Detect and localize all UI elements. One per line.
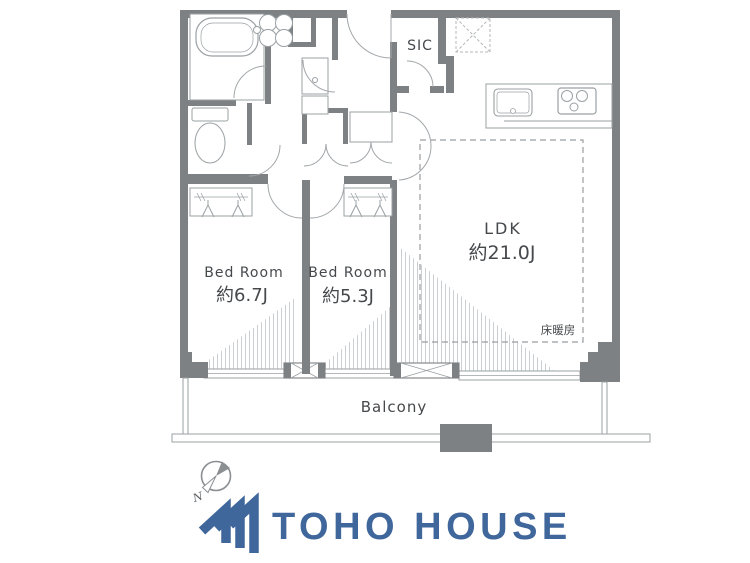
floorplan-drawing: SIC LDK 約21.0J 床暖房 Bed Room 約6.7J Bed Ro… <box>0 0 750 563</box>
vanity <box>302 58 328 114</box>
label-bedroom2: Bed Room <box>308 265 387 281</box>
stove <box>558 88 596 114</box>
sic-door-arc <box>407 61 433 87</box>
label-sic: SIC <box>407 38 433 54</box>
logo-mark-icon <box>202 503 254 553</box>
label-ldk: LDK <box>484 219 522 238</box>
storage-door-arc <box>304 144 326 166</box>
toilet <box>192 108 228 163</box>
pillar-box <box>456 18 490 52</box>
closet-bedroom1 <box>190 188 252 217</box>
label-bedroom1-size: 約6.7J <box>216 285 268 306</box>
bedroom2-door-arc <box>310 184 344 218</box>
storage-door-arc <box>371 142 392 163</box>
storage-door-arc <box>350 142 371 163</box>
toilet-door-arc <box>249 145 280 176</box>
entrance-door-arc <box>347 14 391 58</box>
label-balcony: Balcony <box>361 398 427 416</box>
ldk-door-arc <box>399 146 431 180</box>
toho-house-logo: TOHO HOUSE <box>202 503 572 553</box>
bedroom1-door-arc <box>268 184 302 218</box>
label-floor-heating: 床暖房 <box>541 323 576 337</box>
label-ldk-size: 約21.0J <box>469 242 536 264</box>
label-bedroom2-size: 約5.3J <box>322 286 374 307</box>
balcony-partition <box>440 424 492 452</box>
storage-door-arc <box>326 144 348 166</box>
hall-storage <box>350 112 392 142</box>
closet-bedroom2 <box>344 188 392 217</box>
north-label: N <box>190 489 204 505</box>
bathroom <box>190 14 264 100</box>
north-compass-icon: N <box>190 462 230 506</box>
ldk-door-arc <box>399 112 431 146</box>
kitchen-counter <box>486 84 612 128</box>
logo-wordmark: TOHO HOUSE <box>272 506 572 548</box>
floorplan-page: SIC LDK 約21.0J 床暖房 Bed Room 約6.7J Bed Ro… <box>0 0 750 563</box>
label-bedroom1: Bed Room <box>204 265 283 281</box>
